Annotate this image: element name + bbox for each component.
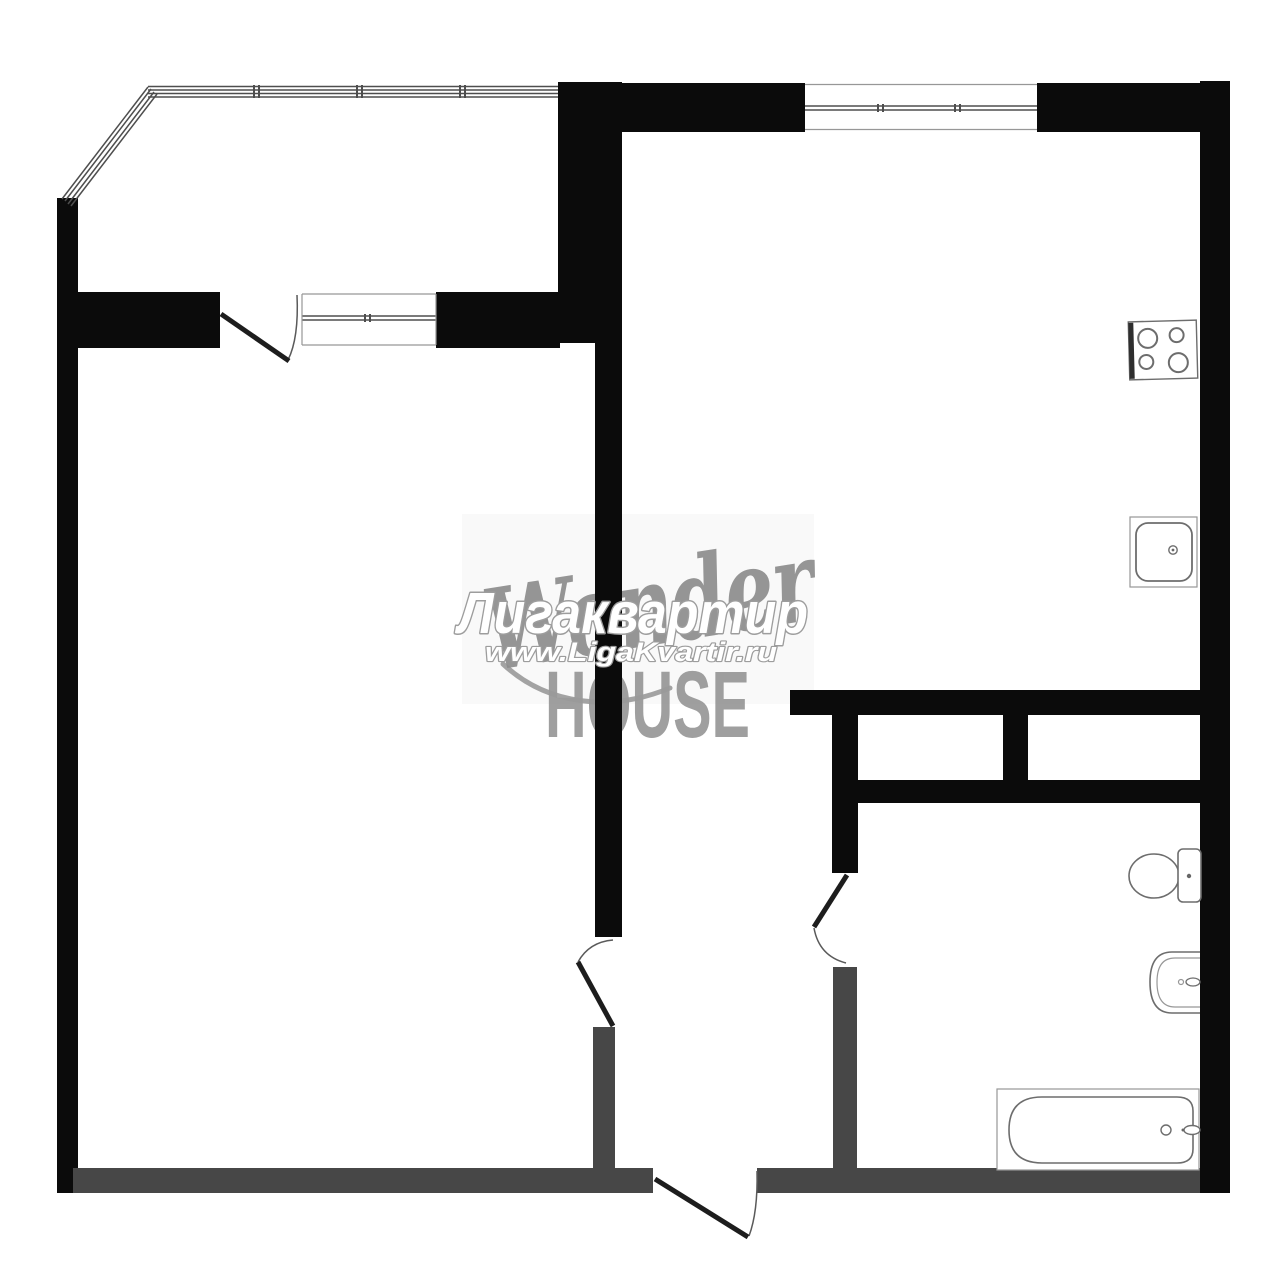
bathtub-icon bbox=[997, 1089, 1200, 1170]
door-arcs bbox=[288, 295, 846, 1236]
wall-balcony-sep-left bbox=[57, 292, 220, 348]
bathroom-door-arc bbox=[814, 928, 846, 963]
living-room-door bbox=[578, 962, 613, 1026]
floor-plan-image: Wonder HOUSE bbox=[0, 0, 1280, 1280]
balcony-door bbox=[221, 314, 289, 361]
wall-bottom-right bbox=[757, 1168, 1200, 1193]
door-leaves bbox=[221, 314, 847, 1237]
balcony-window bbox=[62, 85, 558, 206]
entry-door bbox=[655, 1179, 748, 1237]
entry-door-arc bbox=[749, 1171, 757, 1236]
toilet-icon bbox=[1129, 849, 1201, 902]
floor-plan-canvas: Wonder HOUSE bbox=[0, 0, 1280, 1280]
balcony-door-arc bbox=[288, 295, 297, 360]
bathroom-door bbox=[814, 875, 847, 927]
wall-mid-column bbox=[558, 82, 622, 343]
stove-icon bbox=[1128, 320, 1197, 380]
wall-bottom-left bbox=[73, 1168, 653, 1193]
wall-mid-lower bbox=[593, 1027, 615, 1173]
washbasin-icon bbox=[1150, 952, 1200, 1013]
room-window bbox=[302, 294, 436, 345]
kitchen-window bbox=[805, 85, 1037, 130]
watermark-block-text: HOUSE bbox=[545, 652, 750, 758]
wall-closet-bottom bbox=[858, 780, 1200, 803]
living-room-door-arc bbox=[578, 940, 613, 962]
liga-kvartir-watermark: Лигаквартир www.LigaKvartir.ru bbox=[454, 581, 808, 667]
kitchen-sink-icon bbox=[1130, 517, 1197, 587]
wall-right-outer bbox=[1200, 81, 1230, 1193]
wall-kitchen-hall bbox=[790, 690, 1230, 715]
wall-balcony-sep-right bbox=[436, 292, 560, 348]
agency-url-watermark: www.LigaKvartir.ru bbox=[485, 637, 778, 667]
wall-kitchen-top-left bbox=[622, 83, 805, 132]
wall-bathroom-left bbox=[833, 967, 857, 1170]
wall-closet-left bbox=[832, 715, 858, 873]
wall-closet-mid bbox=[1003, 715, 1028, 780]
